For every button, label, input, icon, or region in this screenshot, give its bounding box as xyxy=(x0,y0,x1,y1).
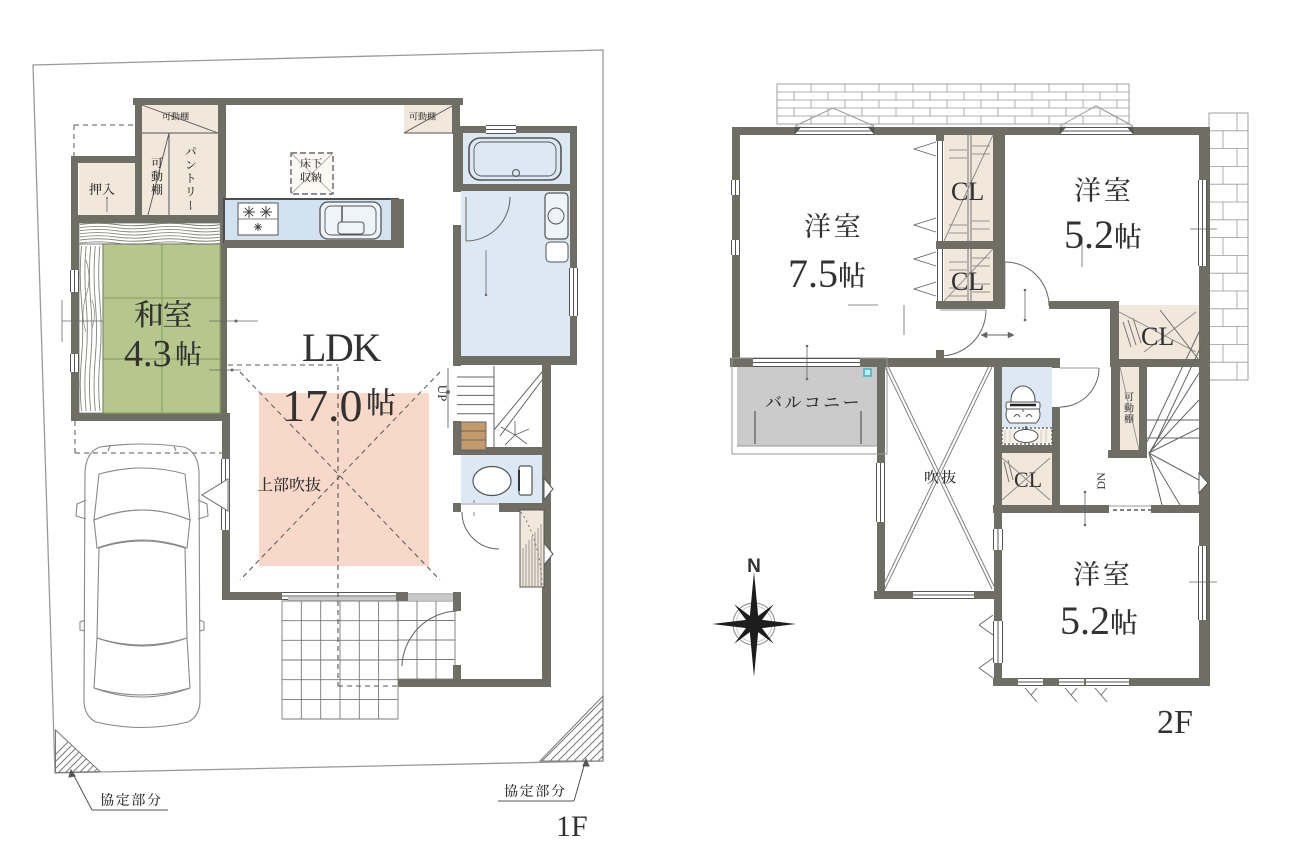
svg-text:1F: 1F xyxy=(556,810,588,843)
svg-text:CL: CL xyxy=(951,267,984,296)
svg-text:N: N xyxy=(747,556,761,577)
svg-text:5.2: 5.2 xyxy=(1060,598,1110,643)
svg-text:2F: 2F xyxy=(1157,704,1193,741)
svg-text:DN: DN xyxy=(1094,472,1108,490)
svg-text:CL: CL xyxy=(1141,322,1174,351)
svg-text:CL: CL xyxy=(951,177,984,206)
svg-text:7.5: 7.5 xyxy=(788,251,838,296)
svg-text:17.0: 17.0 xyxy=(282,380,363,431)
svg-text:CL: CL xyxy=(1014,467,1042,492)
svg-text:LDK: LDK xyxy=(302,325,381,370)
svg-text:4.3: 4.3 xyxy=(124,333,172,375)
svg-text:5.2: 5.2 xyxy=(1064,212,1114,257)
